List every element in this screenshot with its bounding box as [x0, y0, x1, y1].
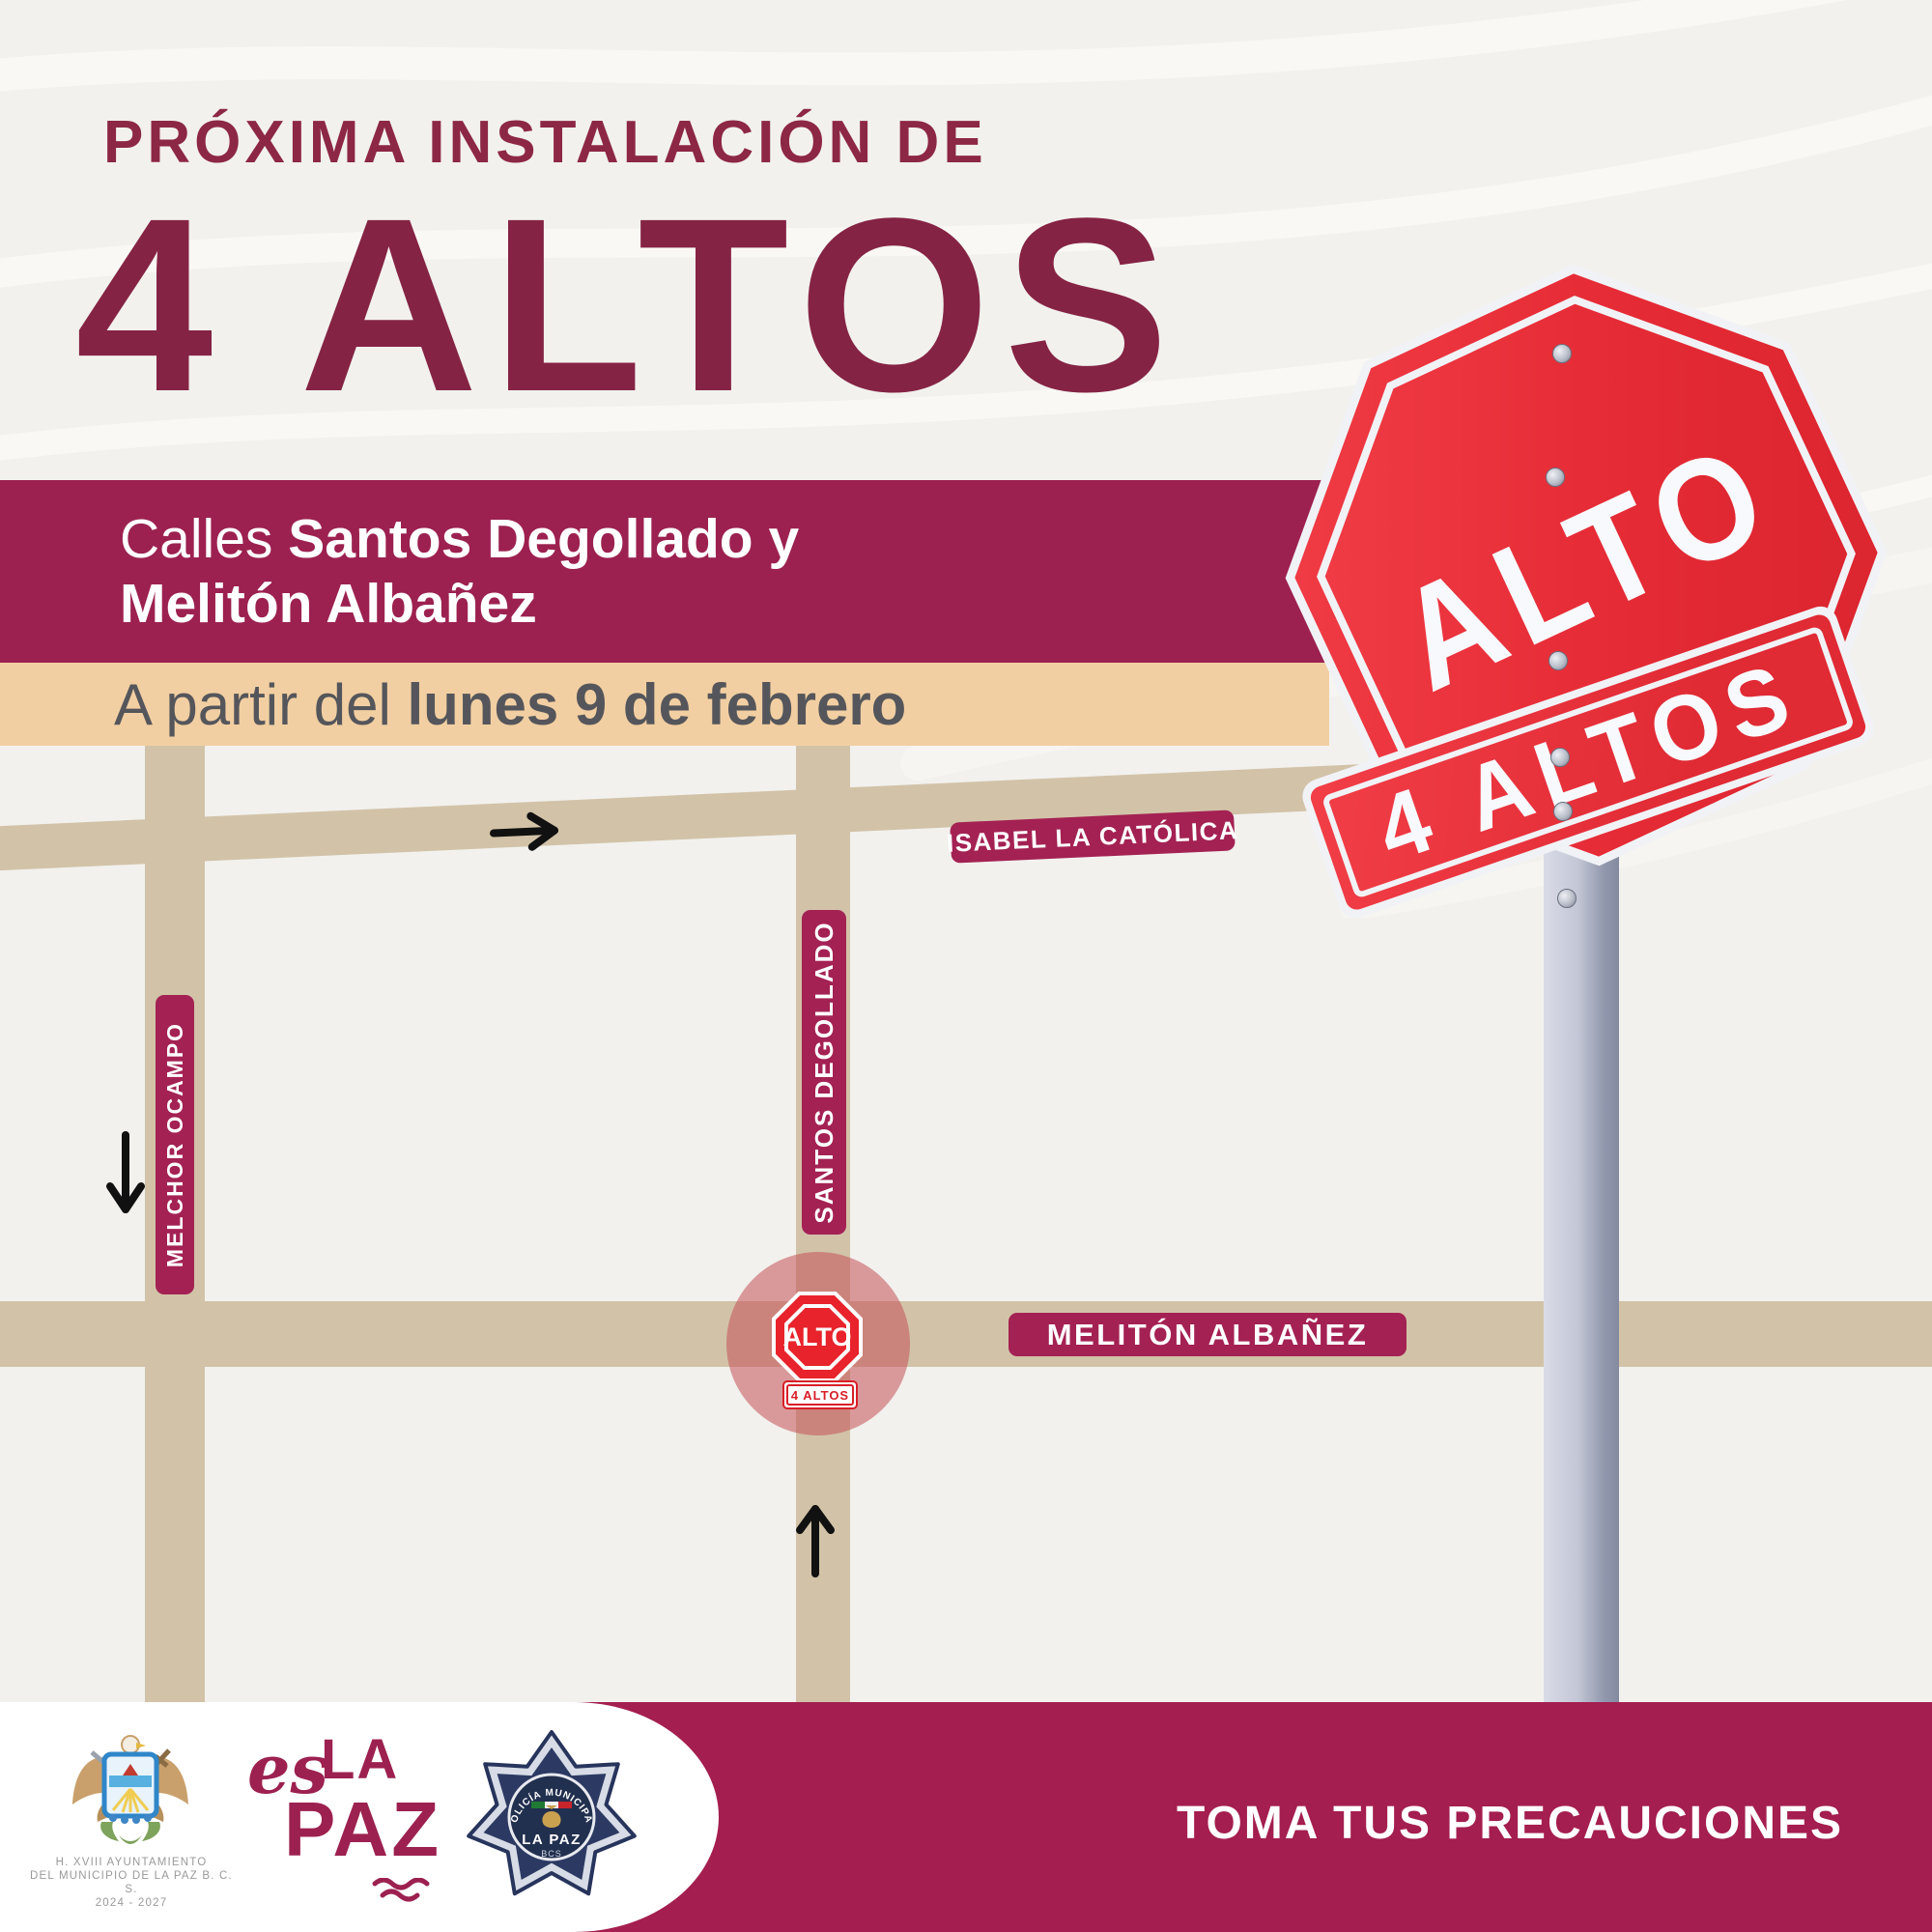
stop-sign-map-icon: ALTO	[772, 1292, 863, 1382]
street-label-santos: SANTOS DEGOLLADO	[802, 910, 846, 1235]
police-badge: POLICÍA MUNICIPAL LA PAZ BCS	[460, 1725, 643, 1909]
streets-line2: Melitón Albañez	[120, 572, 1325, 637]
streets-line1: Calles Santos Degollado y	[120, 507, 1325, 572]
four-altos-mini-badge: 4 ALTOS	[782, 1380, 858, 1409]
stop-icon-label: ALTO	[772, 1292, 863, 1382]
poster-root: PRÓXIMA INSTALACIÓN DE 4 ALTOS Calles Sa…	[0, 0, 1932, 1932]
arrow-right-icon	[488, 810, 565, 853]
street-label-melchor: MELCHOR OCAMPO	[156, 995, 194, 1294]
bolt-icon	[1552, 344, 1572, 363]
streets-banner: Calles Santos Degollado y Melitón Albañe…	[0, 480, 1325, 663]
bolt-icon	[1550, 748, 1570, 767]
big-heading-4altos: 4 ALTOS	[75, 170, 1182, 442]
government-caption: H. XVIII AYUNTAMIENTO DEL MUNICIPIO DE L…	[27, 1856, 236, 1910]
street-label-meliton: MELITÓN ALBAÑEZ	[1009, 1313, 1406, 1356]
date-band: A partir del lunes 9 de febrero	[0, 663, 1329, 746]
bolt-icon	[1548, 651, 1568, 670]
bolt-icon	[1557, 889, 1577, 908]
municipal-coat-of-arms	[68, 1731, 193, 1851]
bolt-icon	[1546, 468, 1565, 487]
bolt-icon	[1553, 802, 1573, 821]
warning-text: TOMA TUS PRECAUCIONES	[1177, 1797, 1843, 1850]
date-value: lunes 9 de febrero	[408, 671, 907, 738]
date-prefix: A partir del	[114, 671, 391, 738]
sign-pole	[1544, 848, 1619, 1706]
arrow-up-icon	[794, 1503, 837, 1578]
road-meliton-albanez	[0, 1301, 1932, 1367]
es-la-paz-logo: es LA PAZ	[247, 1727, 440, 1901]
logo-wave-icon	[371, 1878, 439, 1903]
badge-state-text: BCS	[541, 1849, 562, 1859]
arrow-down-icon	[104, 1130, 147, 1217]
badge-city-text: LA PAZ	[522, 1832, 582, 1848]
